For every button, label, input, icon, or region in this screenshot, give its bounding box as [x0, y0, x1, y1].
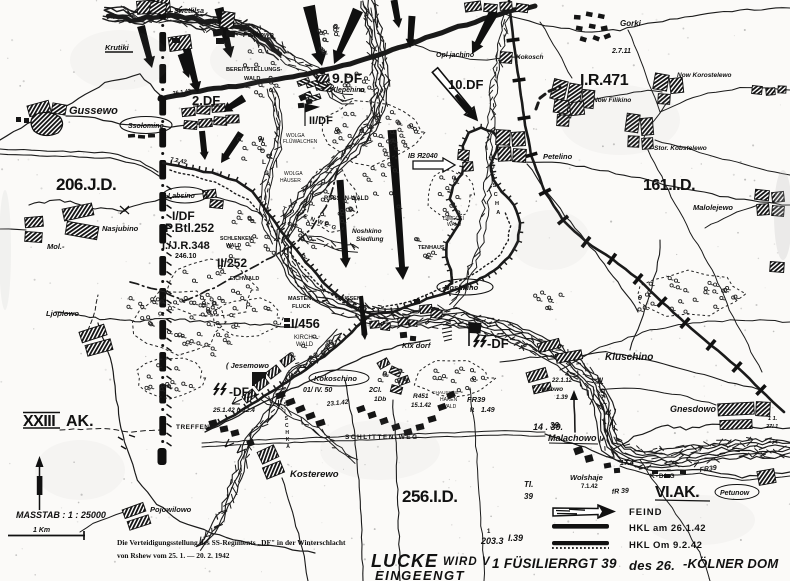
svg-text:2.7.11: 2.7.11	[611, 48, 631, 55]
svg-text:Nasjubino: Nasjubino	[102, 224, 139, 233]
svg-text:WALD: WALD	[447, 222, 462, 228]
svg-text:22.1.12: 22.1.12	[551, 378, 573, 384]
svg-text:H: H	[285, 430, 289, 436]
svg-text:EINGEENGT: EINGEENGT	[375, 568, 465, 581]
svg-text:Labsino: Labsino	[168, 193, 196, 200]
svg-text:WOLGA: WOLGA	[284, 171, 303, 177]
svg-text:H: H	[495, 201, 499, 207]
svg-text:I./J.R.348: I./J.R.348	[162, 240, 210, 252]
svg-text:206.J.D.: 206.J.D.	[56, 175, 116, 194]
svg-text:K: K	[286, 437, 290, 443]
svg-text:Kosterewo: Kosterewo	[290, 469, 339, 480]
svg-text:fR 39: fR 39	[612, 488, 630, 496]
svg-text:P.Btl.252: P.Btl.252	[165, 221, 214, 235]
svg-text:L: L	[262, 159, 266, 166]
svg-text:1Db: 1Db	[374, 396, 386, 403]
svg-text:2CI.: 2CI.	[368, 387, 382, 394]
svg-text:FEIND: FEIND	[629, 507, 663, 518]
svg-text:WALD: WALD	[442, 404, 457, 410]
svg-text:A: A	[286, 444, 290, 450]
svg-text:Petunow: Petunow	[720, 490, 750, 497]
svg-text:01/ IV. 50: 01/ IV. 50	[303, 387, 332, 394]
svg-text:256.I.D.: 256.I.D.	[402, 487, 458, 506]
svg-text:Krutiki: Krutiki	[105, 43, 130, 52]
svg-text:II/252: II/252	[217, 256, 247, 270]
svg-text:WIRD V: WIRD V	[443, 556, 491, 568]
svg-text:Kokosch: Kokosch	[516, 54, 543, 61]
svg-text:I.39: I.39	[508, 533, 523, 543]
svg-text:161.I.D.: 161.I.D.	[643, 177, 695, 194]
svg-text:Now Korostelewo: Now Korostelewo	[677, 72, 732, 79]
svg-text:IB Я2040: IB Я2040	[408, 153, 438, 160]
svg-text:-DF: -DF	[229, 385, 249, 399]
svg-text:I.R.471: I.R.471	[580, 72, 629, 89]
svg-text:HAKEN: HAKEN	[440, 397, 458, 403]
svg-text:EICHWALD: EICHWALD	[230, 276, 259, 282]
svg-text:SCHLENKEN-: SCHLENKEN-	[220, 236, 254, 242]
svg-text:39: 39	[524, 492, 533, 501]
svg-text:HKL am 26.1.42: HKL am 26.1.42	[629, 523, 706, 534]
svg-text:C: C	[494, 192, 498, 198]
svg-text:10.DF: 10.DF	[448, 77, 483, 92]
svg-text:Pojowilowo: Pojowilowo	[150, 505, 192, 514]
svg-text:Noshkino: Noshkino	[352, 228, 382, 235]
svg-text:SCHLITTEN-WEG: SCHLITTEN-WEG	[345, 434, 419, 441]
svg-text:14 . 39.: 14 . 39.	[533, 422, 563, 432]
svg-text:A: A	[496, 210, 500, 216]
svg-text:25.1.42 u 12.4: 25.1.42 u 12.4	[212, 407, 255, 414]
svg-text:Wolshaje: Wolshaje	[570, 473, 603, 482]
svg-text:II/DF: II/DF	[309, 115, 333, 127]
svg-text:FLUCK: FLUCK	[292, 304, 311, 310]
svg-text:MASTEN: MASTEN	[288, 296, 311, 302]
svg-text:9.DF: 9.DF	[332, 70, 363, 86]
svg-text:I/456: I/456	[291, 316, 320, 331]
svg-text:1.39: 1.39	[556, 395, 568, 401]
svg-text:TENHAUS: TENHAUS	[418, 245, 445, 251]
svg-text:H: H	[489, 156, 493, 162]
svg-text:O: O	[260, 148, 265, 155]
svg-text:Poljkowo: Poljkowo	[243, 32, 274, 39]
svg-text:A: A	[266, 181, 271, 188]
svg-text:Gussewo: Gussewo	[69, 105, 118, 117]
svg-text:BEREITSTELLUNGS-: BEREITSTELLUNGS-	[226, 67, 282, 73]
svg-text:TI.: TI.	[524, 480, 533, 489]
svg-text:Kluschino: Kluschino	[605, 352, 653, 363]
svg-text:AK.: AK.	[66, 413, 94, 430]
svg-text:1 1.: 1 1.	[768, 416, 778, 422]
svg-text:Irinowo: Irinowo	[540, 386, 563, 393]
svg-text:Die Verteidigungsstellung des: Die Verteidigungsstellung des SS-Regimen…	[117, 538, 346, 547]
svg-text:Kix dorf: Kix dorf	[402, 341, 432, 350]
svg-text:Klepenino: Klepenino	[331, 87, 366, 94]
svg-text:R451: R451	[413, 393, 429, 400]
svg-text:Petelino: Petelino	[543, 152, 573, 161]
svg-text:S: S	[493, 183, 497, 189]
svg-text:-DF: -DF	[487, 336, 509, 351]
svg-text:Now Filikino: Now Filikino	[593, 97, 631, 104]
svg-text:KIRCH-: KIRCH-	[294, 335, 315, 341]
svg-text:R: R	[470, 408, 475, 414]
svg-text:W: W	[597, 377, 604, 384]
svg-text:FR39: FR39	[467, 395, 486, 404]
svg-text:des 26.: des 26.	[629, 558, 675, 573]
svg-text:FLÜWALCHEN: FLÜWALCHEN	[283, 138, 318, 145]
svg-text:1 FÜSILIERRGT 39: 1 FÜSILIERRGT 39	[492, 556, 617, 571]
svg-text:G: G	[264, 170, 269, 177]
svg-text:15.1.42: 15.1.42	[411, 403, 432, 409]
svg-text:G: G	[606, 410, 611, 417]
svg-text:Ssolomino: Ssolomino	[128, 123, 165, 130]
svg-text:246.10: 246.10	[175, 253, 197, 260]
svg-text:Malolejewo: Malolejewo	[693, 203, 733, 212]
svg-text:C: C	[285, 423, 289, 429]
svg-text:Mol.-: Mol.-	[47, 242, 65, 251]
svg-text:A: A	[609, 421, 614, 428]
svg-text:O: O	[600, 388, 605, 395]
svg-text:Stor. Kobstelewo: Stor. Kobstelewo	[654, 145, 707, 152]
svg-text:Siedlung: Siedlung	[356, 236, 383, 243]
svg-text:WALD: WALD	[226, 243, 242, 249]
svg-text:Gnesdowo: Gnesdowo	[670, 404, 717, 414]
svg-text:L: L	[603, 399, 607, 406]
svg-text:( Jesemowo: ( Jesemowo	[226, 361, 269, 370]
svg-text:-KÖLNER DOM: -KÖLNER DOM	[683, 556, 779, 571]
svg-text:Gorki: Gorki	[620, 19, 642, 28]
svg-text:Opl jachino: Opl jachino	[436, 52, 475, 59]
svg-text:MASSTAB : 1 : 25000: MASSTAB : 1 : 25000	[16, 510, 106, 520]
svg-text:W: W	[258, 137, 265, 144]
svg-text:WALD: WALD	[296, 342, 314, 348]
svg-text:HÄUSER: HÄUSER	[280, 177, 301, 184]
svg-text:1.49: 1.49	[481, 407, 495, 414]
svg-text:TREFFEN: TREFFEN	[176, 424, 209, 431]
svg-text:K-DLG: K-DLG	[650, 473, 676, 480]
svg-text:VI.AK.: VI.AK.	[655, 484, 699, 501]
svg-text:1 Km: 1 Km	[33, 527, 50, 534]
svg-text:von Rshew vom 25. 1. — 20. 2: von Rshew vom 25. 1. — 20. 2. 1942	[117, 551, 230, 560]
svg-text:RUSSEN: RUSSEN	[338, 296, 361, 302]
svg-text:27/ 1: 27/ 1	[765, 424, 778, 430]
svg-text:7.1.42: 7.1.42	[581, 484, 598, 490]
svg-text:17.4: 17.4	[620, 460, 634, 467]
svg-text:HKL Om 9.2.42: HKL Om 9.2.42	[629, 540, 702, 551]
svg-text:RUSSEN-WALD: RUSSEN-WALD	[324, 196, 369, 202]
svg-text:9: 9	[638, 295, 642, 302]
svg-text:K: K	[491, 174, 495, 180]
svg-text:Malachowo: Malachowo	[548, 433, 597, 443]
svg-text:203.3: 203.3	[480, 536, 504, 546]
svg-text:WALD: WALD	[244, 76, 260, 82]
svg-text:Kokoschino: Kokoschino	[314, 374, 357, 383]
svg-text:CHAUSSEE: CHAUSSEE	[432, 390, 458, 396]
svg-text:Swetlilsa: Swetlilsa	[174, 8, 204, 15]
svg-text:Ljoplowo: Ljoplowo	[46, 309, 79, 318]
svg-text:O: O	[490, 165, 495, 171]
svg-text:Noshkino: Noshkino	[444, 283, 479, 292]
